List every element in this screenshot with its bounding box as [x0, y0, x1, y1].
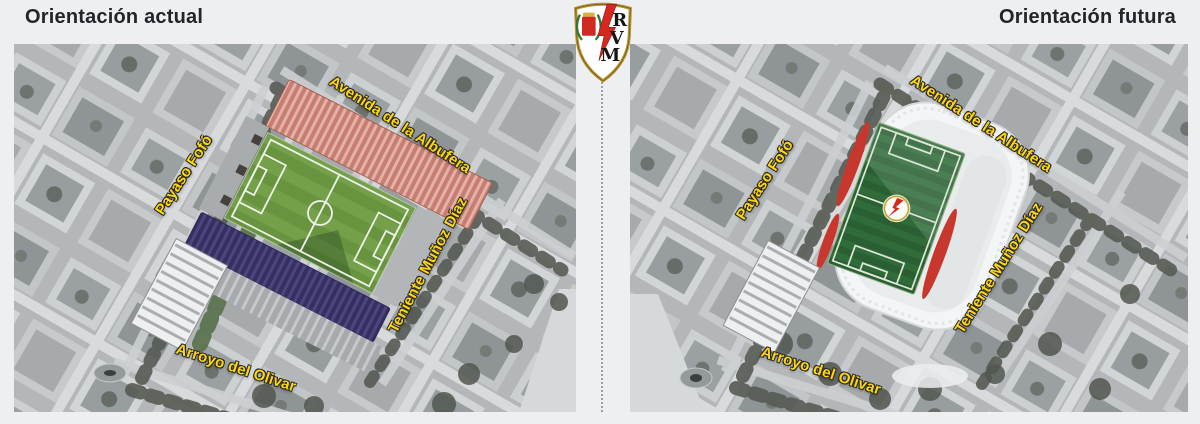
left-panel-title: Orientación actual [25, 6, 203, 29]
rayo-vallecano-crest: R V M [571, 0, 635, 84]
dotted-divider-line [601, 46, 603, 412]
crest-letter-m: M [600, 45, 620, 66]
panel-current-orientation: Payaso Fofó Avenida de la Albufera Tenie… [14, 44, 576, 412]
stadium-orientation-infographic: Orientación actual Orientación futura [0, 0, 1200, 424]
panel-future-orientation: Payaso Fofó Avenida de la Albufera Tenie… [630, 44, 1188, 412]
aerial-render-future [630, 44, 1188, 412]
aerial-photo-current [14, 44, 576, 412]
right-panel-title: Orientación futura [999, 6, 1176, 29]
